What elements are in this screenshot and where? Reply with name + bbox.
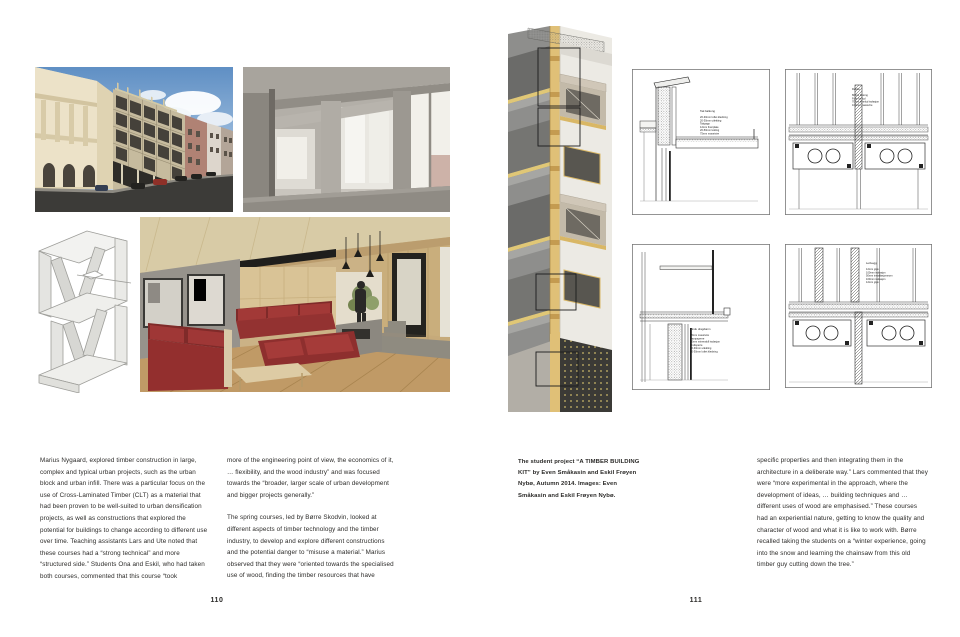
paragraph: The spring courses, led by Børre Skodvin… <box>227 512 395 582</box>
detail-title: Vindu drag/karm <box>690 328 760 332</box>
street-render-photo <box>35 67 233 212</box>
facade-axon-detail <box>508 26 612 412</box>
page-number-left: 110 <box>199 597 235 604</box>
timber-kit-sketch <box>33 217 133 393</box>
detail-title: Dekke <box>852 88 922 92</box>
sofa-interior-photo <box>140 217 450 392</box>
body-column-1: Marius Nygaard, explored timber construc… <box>40 455 208 594</box>
paragraph: more of the engineering point of view, t… <box>227 455 395 501</box>
detail-label: Dekke 80mm betong Folie for lyd 70mm tri… <box>852 88 960 126</box>
book-spread: Marius Nygaard, explored timber construc… <box>0 0 960 637</box>
body-column-2: more of the engineering point of view, t… <box>227 455 395 593</box>
interior-columns-photo <box>243 67 450 212</box>
detail-title: Tak balkong <box>700 110 770 114</box>
detail-items: 80mm betong Folie for lyd 70mm trinnlyd … <box>852 94 922 107</box>
body-column-3: specific properties and then integrating… <box>757 455 929 582</box>
paragraph: specific properties and then integrating… <box>757 455 929 571</box>
paragraph: Marius Nygaard, explored timber construc… <box>40 455 208 583</box>
detail-label: Tak balkong 20-30mm luftet kledning 20-3… <box>700 110 840 162</box>
detail-items: 12mm gips 100mm isolasjon 50mm installas… <box>866 268 936 284</box>
detail-drawing-window-jamb: Vindu drag/karm 75mm massivtre Dampsperr… <box>632 244 770 390</box>
detail-title: Lettvegg <box>866 262 936 266</box>
figure-caption: The student project “A TIMBER BUILDING K… <box>518 457 644 502</box>
detail-drawing-roof-balcony: Tak balkong 20-30mm luftet kledning 20-3… <box>632 69 770 215</box>
detail-items: 20-30mm luftet kledning 20-30mm utlektin… <box>700 116 770 136</box>
detail-items: 75mm massivtre Dampsperre 50mm mineralul… <box>690 334 760 354</box>
detail-label: Vindu drag/karm 75mm massivtre Dampsperr… <box>690 328 830 380</box>
detail-label: Lettvegg 12mm gips 100mm isolasjon 50mm … <box>866 262 960 307</box>
page-number-right: 111 <box>678 597 714 604</box>
